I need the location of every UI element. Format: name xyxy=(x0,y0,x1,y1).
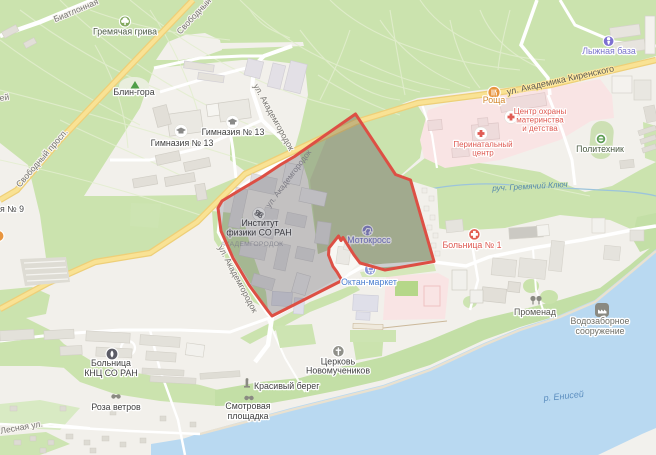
svg-text:Водозаборное: Водозаборное xyxy=(571,316,630,326)
svg-text:Новомучеников: Новомучеников xyxy=(306,366,370,376)
svg-text:Гимназия № 13: Гимназия № 13 xyxy=(202,127,265,137)
svg-text:Красивый берег: Красивый берег xyxy=(254,381,319,391)
svg-text:я № 9: я № 9 xyxy=(0,204,24,214)
svg-text:Смотровая: Смотровая xyxy=(225,401,270,411)
svg-text:ей: ей xyxy=(0,92,10,103)
svg-text:Гимназия № 13: Гимназия № 13 xyxy=(151,138,214,148)
svg-text:Роща: Роща xyxy=(483,95,506,105)
svg-text:Блин-гора: Блин-гора xyxy=(113,87,154,97)
svg-text:Больница: Больница xyxy=(91,358,131,368)
svg-text:Больница № 1: Больница № 1 xyxy=(442,240,501,250)
svg-text:Политехник: Политехник xyxy=(576,144,624,154)
svg-text:Лыжная база: Лыжная база xyxy=(582,46,636,56)
svg-text:Гремячая грива: Гремячая грива xyxy=(93,27,157,37)
svg-text:и детства: и детства xyxy=(522,124,558,133)
svg-text:КНЦ СО РАН: КНЦ СО РАН xyxy=(84,368,137,378)
svg-text:центр: центр xyxy=(472,149,494,158)
svg-text:площадка: площадка xyxy=(227,411,268,421)
svg-text:Октан-маркет: Октан-маркет xyxy=(341,277,397,287)
svg-text:Променад: Променад xyxy=(514,307,556,317)
svg-text:сооружение: сооружение xyxy=(575,326,624,336)
svg-text:Роза ветров: Роза ветров xyxy=(91,402,141,412)
